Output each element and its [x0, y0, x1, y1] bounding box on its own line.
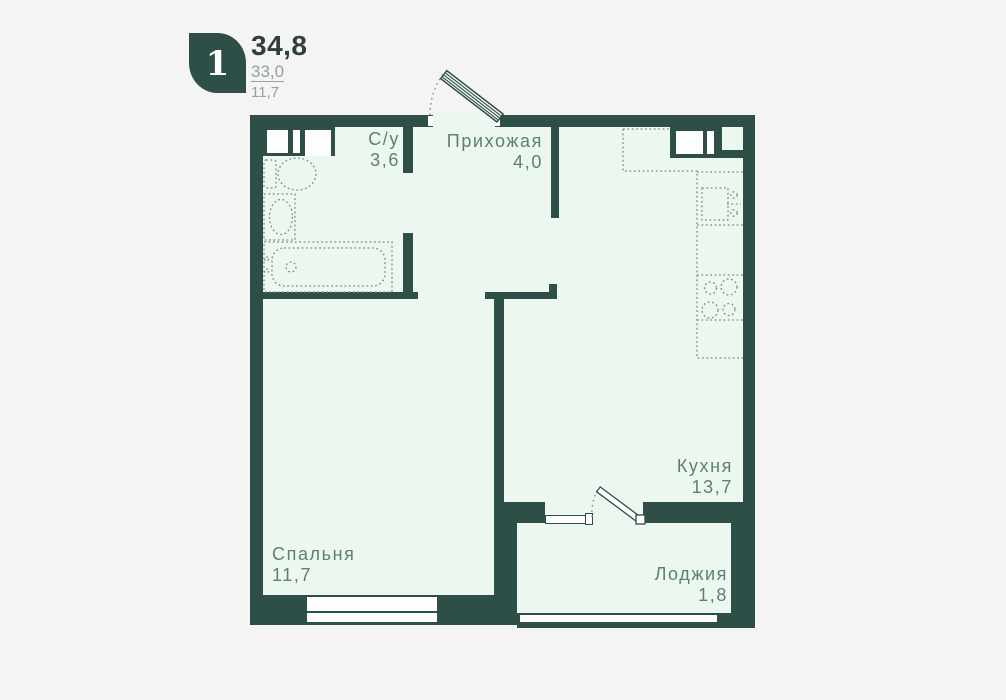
rooms-area: 11,7 — [251, 85, 279, 100]
wall-left — [250, 115, 263, 625]
room-label-bathroom: С/у 3,6 — [320, 129, 400, 171]
bathroom-vent-hole-2 — [293, 130, 300, 153]
room-area: 1,8 — [600, 585, 728, 606]
room-name: Спальня — [272, 544, 402, 565]
room-name: Кухня — [620, 456, 733, 477]
room-label-loggia: Лоджия 1,8 — [600, 564, 728, 606]
room-name: С/у — [320, 129, 400, 150]
floor-plan: С/у 3,6 Прихожая 4,0 Кухня 13,7 Спальня … — [0, 0, 1006, 700]
wall-top-right — [495, 115, 755, 127]
area-summary: 34,8 33,0 11,7 — [251, 32, 308, 100]
room-name: Прихожая — [400, 131, 543, 152]
wall-bathroom-bottom — [250, 292, 418, 299]
bathroom-vent-hole-1 — [267, 130, 288, 153]
wall-top-left — [250, 115, 433, 127]
wall-central — [494, 299, 504, 503]
rooms-count: 1 — [189, 33, 246, 93]
entrance-jamb-left — [428, 116, 433, 126]
kitchen-vent-stub — [718, 150, 743, 158]
wall-hallway-bottom-tick — [549, 284, 557, 292]
wall-hallway-right — [551, 127, 559, 218]
balcony-window-cap — [585, 513, 593, 525]
loggia-window — [520, 615, 717, 622]
room-area: 3,6 — [320, 150, 400, 171]
room-label-bedroom: Спальня 11,7 — [272, 544, 402, 586]
bedroom-window-frame-line — [307, 611, 437, 613]
wall-bathroom-right-lower — [403, 233, 413, 292]
balcony-window — [545, 515, 588, 524]
wall-loggia-portal-left-block — [494, 502, 545, 523]
room-name: Лоджия — [600, 564, 728, 585]
room-label-kitchen: Кухня 13,7 — [620, 456, 733, 498]
total-area: 34,8 — [251, 32, 308, 60]
room-area: 11,7 — [272, 565, 402, 586]
entrance-jamb-right — [495, 116, 500, 126]
room-area: 13,7 — [620, 477, 733, 498]
wall-loggia-right — [731, 502, 755, 628]
bedroom-window — [307, 597, 437, 622]
room-area: 4,0 — [400, 152, 543, 173]
rooms-count-badge: 1 — [189, 33, 246, 93]
kitchen-vent-hole-1 — [676, 131, 703, 154]
room-label-hallway: Прихожая 4,0 — [400, 131, 543, 173]
wall-hallway-bottom — [485, 292, 557, 299]
kitchen-vent-hole-2 — [707, 131, 714, 154]
living-area: 33,0 — [251, 63, 284, 82]
